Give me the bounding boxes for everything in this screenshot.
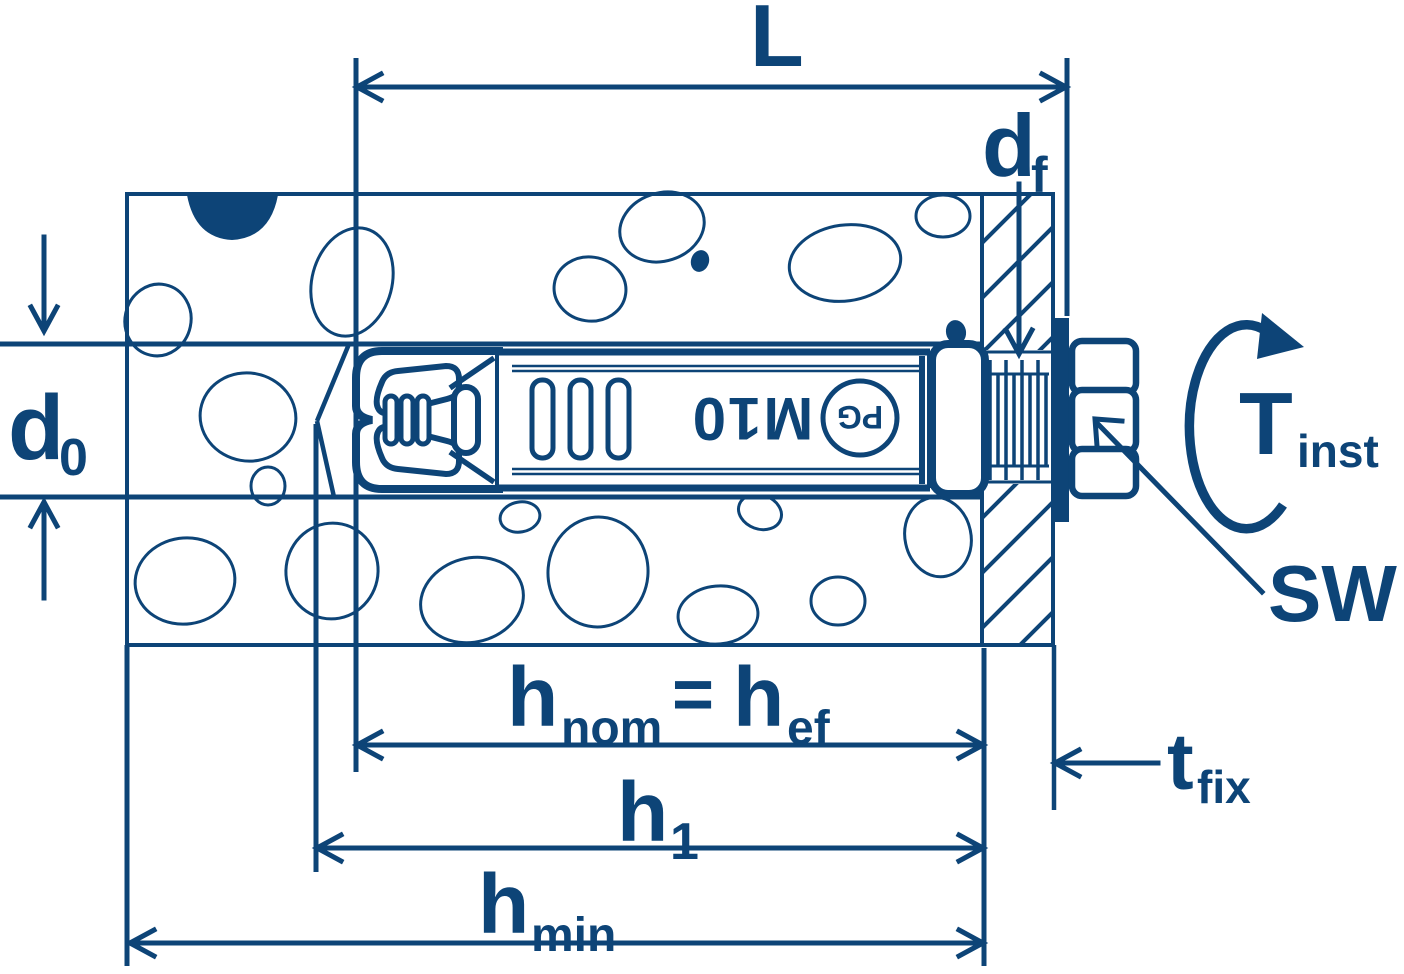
dimension-tfix — [1055, 750, 1158, 776]
label-hmin: hmin — [478, 857, 616, 962]
label-tinst: Tinst — [1239, 374, 1379, 477]
label-hnom-hef: hnom=hef — [507, 650, 831, 755]
cone-slot — [454, 387, 478, 453]
nut-face-top — [1072, 341, 1136, 393]
washer — [1051, 318, 1069, 522]
dimension-hnom — [357, 732, 983, 758]
cone-rib — [401, 396, 413, 444]
anchor-installation-diagram: M10 PG — [0, 0, 1404, 974]
anchor-size-marking: M10 — [691, 385, 814, 452]
brand-logo-text: PG — [837, 399, 883, 435]
sleeve-slot — [570, 380, 591, 458]
expansion-cone — [356, 351, 509, 489]
label-sw: SW — [1268, 549, 1397, 638]
rotation-arrowhead-icon — [1257, 313, 1304, 359]
label-L: L — [750, 0, 804, 85]
anchor-collar — [932, 344, 985, 494]
sleeve-slot — [608, 380, 629, 458]
label-h1: h1 — [617, 765, 699, 871]
dimension-L — [357, 74, 1066, 100]
leader-line — [1097, 423, 1262, 592]
label-df: df — [982, 96, 1048, 203]
label-tfix: tfix — [1167, 717, 1251, 813]
cone-rib — [385, 396, 397, 444]
anchor-sleeve-body: M10 PG — [499, 352, 930, 488]
sw-leader — [1095, 419, 1262, 592]
cone-rib — [417, 396, 429, 444]
label-d0: d0 — [8, 377, 88, 487]
sleeve-slot — [532, 380, 553, 458]
diagram-canvas: M10 PG — [0, 0, 1404, 974]
